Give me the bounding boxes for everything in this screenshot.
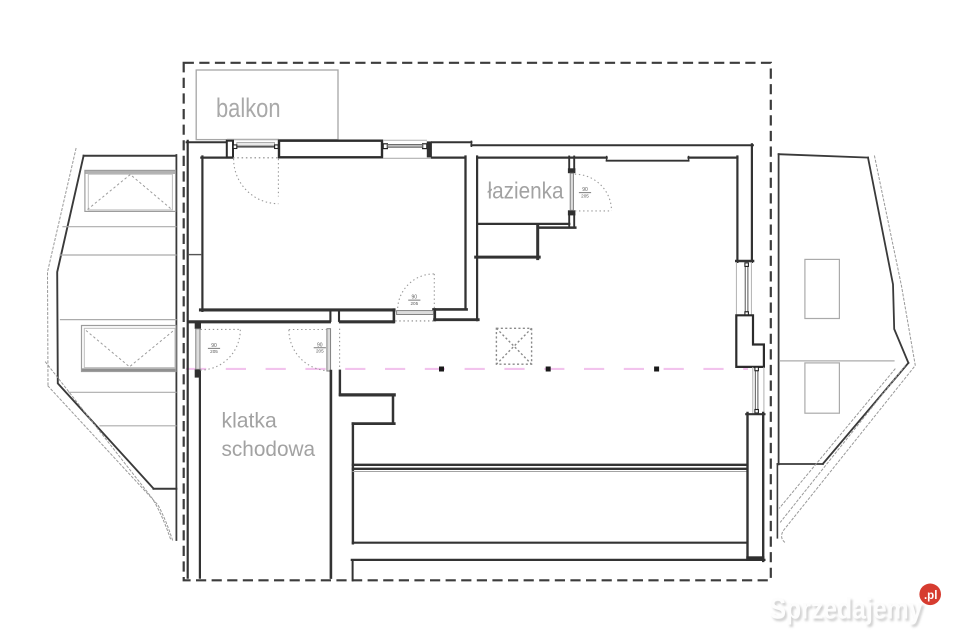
svg-text:205: 205	[210, 349, 218, 354]
svg-text:205: 205	[316, 349, 324, 354]
svg-text:.pl: .pl	[924, 590, 937, 602]
svg-text:łazienka: łazienka	[488, 178, 565, 204]
svg-text:schodowa: schodowa	[222, 438, 316, 461]
svg-text:205: 205	[410, 301, 418, 306]
svg-text:balkon: balkon	[216, 93, 281, 123]
svg-text:klatka: klatka	[222, 409, 278, 432]
svg-text:Sprzedajemy: Sprzedajemy	[770, 593, 923, 626]
svg-text:205: 205	[581, 194, 589, 199]
